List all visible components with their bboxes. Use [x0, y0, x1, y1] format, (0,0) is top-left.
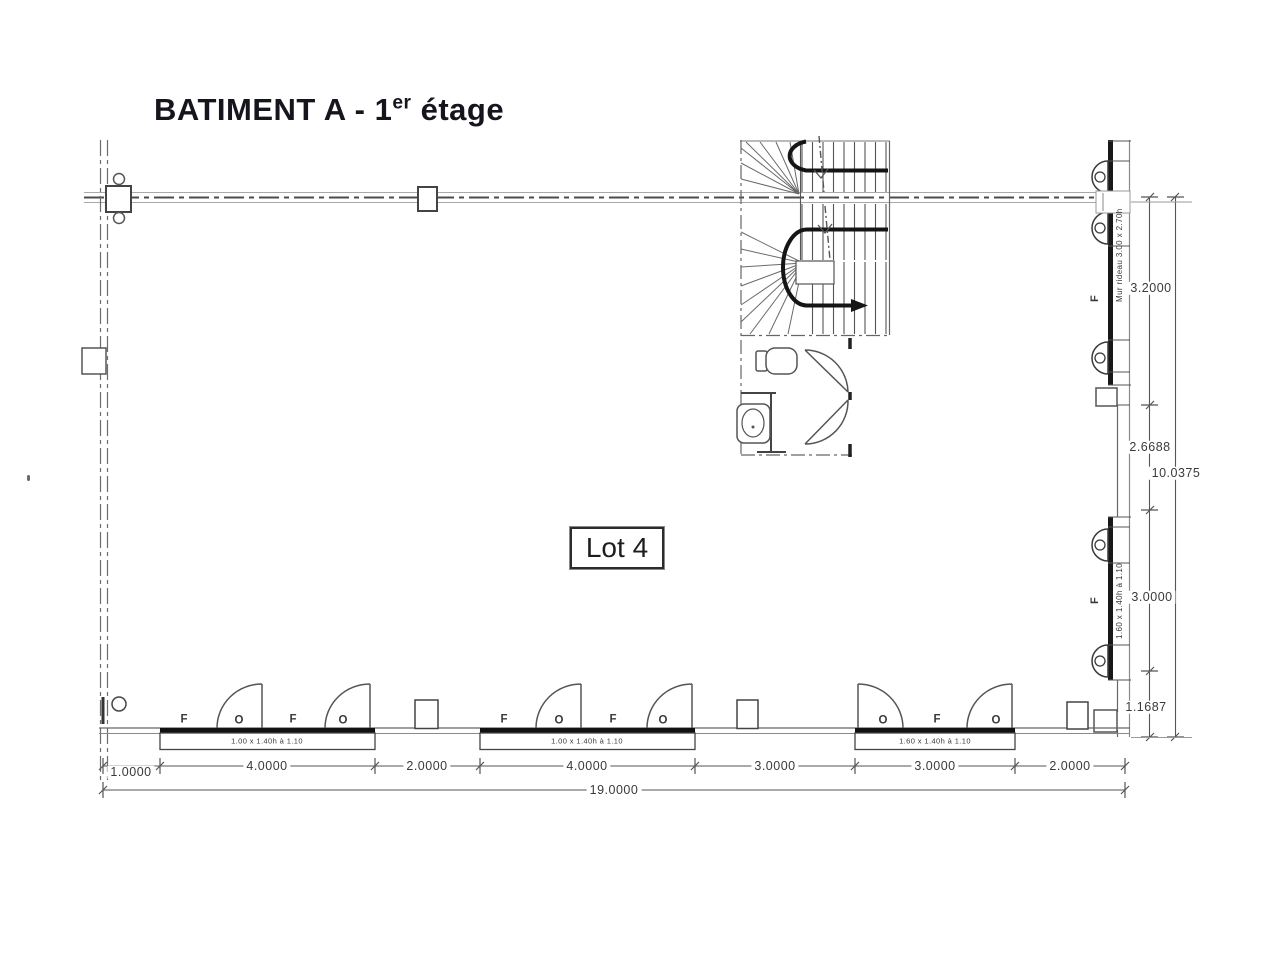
- title-rest: étage: [412, 92, 505, 127]
- column-mid-axis: [418, 187, 437, 211]
- dim-right-b: 2.6688: [1126, 441, 1173, 454]
- window2-spec: 1.00 x 1.40h à 1.10: [551, 737, 623, 745]
- title-superscript: er: [392, 93, 411, 114]
- dim-right-c: 3.0000: [1128, 591, 1175, 604]
- left-wall: [82, 140, 108, 783]
- dim-bottom-1: 1.0000: [107, 766, 154, 779]
- floor-plan-sheet: BATIMENT A - 1er étage Lot 4 1.0000 4.00…: [0, 0, 1280, 960]
- sink: [737, 404, 770, 443]
- window3-mark-o1: O: [879, 715, 888, 727]
- right-pilaster-lower: [1094, 710, 1117, 732]
- stair-handrail-upper: [790, 142, 888, 171]
- window1-mark-o2: O: [339, 715, 348, 727]
- floor-plan-drawing: [0, 0, 1280, 960]
- window3-mark-f1: F: [933, 714, 940, 726]
- right-lower-mark-f: F: [1090, 586, 1103, 604]
- lot-label-text: Lot 4: [586, 532, 648, 564]
- door-swing-lower: [805, 400, 848, 444]
- stair-well-notch: [796, 261, 834, 284]
- window1-mark-f2: F: [289, 714, 296, 726]
- dim-bottom-total: 19.0000: [587, 784, 642, 797]
- dim-bottom-4: 4.0000: [563, 760, 610, 773]
- dim-bottom-2: 4.0000: [243, 760, 290, 773]
- left-wall-pilaster: [82, 348, 106, 374]
- title-main: BATIMENT A - 1: [154, 92, 392, 127]
- dim-right-d: 1.1687: [1122, 701, 1169, 714]
- right-upper-mark-f: F: [1090, 284, 1103, 302]
- right-upper-window-spec: Mur rideau 3.00 x 2.70h: [1112, 165, 1128, 345]
- bathroom: [737, 338, 852, 457]
- toilet: [756, 348, 797, 374]
- pier-3: [1067, 702, 1088, 729]
- scan-artifact-dot: [27, 475, 30, 481]
- window3-mark-o2: O: [992, 715, 1001, 727]
- right-lower-window-spec: 1.60 x 1.40h à 1.10: [1112, 527, 1128, 675]
- pier-2: [737, 700, 758, 729]
- window2-mark-o2: O: [659, 715, 668, 727]
- dim-bottom-6: 3.0000: [911, 760, 958, 773]
- pier-1: [415, 700, 438, 729]
- window1-mark-f1: F: [180, 714, 187, 726]
- door-swing-upper: [805, 350, 848, 392]
- dim-bottom-3: 2.0000: [403, 760, 450, 773]
- column-top-left: [106, 174, 131, 224]
- dimension-lines: [99, 193, 1192, 798]
- dim-bottom-5: 3.0000: [751, 760, 798, 773]
- window2-mark-f1: F: [500, 714, 507, 726]
- corner-column-bottom-left: [103, 697, 126, 724]
- lot-label: Lot 4: [570, 527, 664, 569]
- window2-mark-o1: O: [555, 715, 564, 727]
- dim-right-a: 3.2000: [1127, 282, 1174, 295]
- window1-mark-o1: O: [235, 715, 244, 727]
- dim-bottom-7: 2.0000: [1046, 760, 1093, 773]
- window3-spec: 1.60 x 1.40h à 1.10: [899, 737, 971, 745]
- right-pilaster-upper: [1096, 388, 1117, 406]
- page-title: BATIMENT A - 1er étage: [154, 92, 504, 128]
- window1-spec: 1.00 x 1.40h à 1.10: [231, 737, 303, 745]
- top-wall-axis: [84, 193, 1113, 203]
- dim-right-total: 10.0375: [1149, 467, 1204, 480]
- window2-mark-f2: F: [609, 714, 616, 726]
